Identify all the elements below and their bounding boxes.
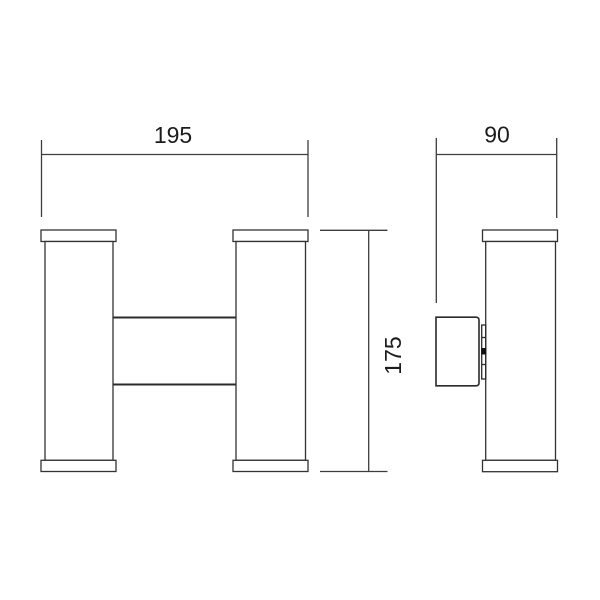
svg-text:175: 175 bbox=[380, 336, 406, 374]
svg-text:195: 195 bbox=[154, 122, 192, 148]
svg-text:90: 90 bbox=[484, 122, 510, 148]
